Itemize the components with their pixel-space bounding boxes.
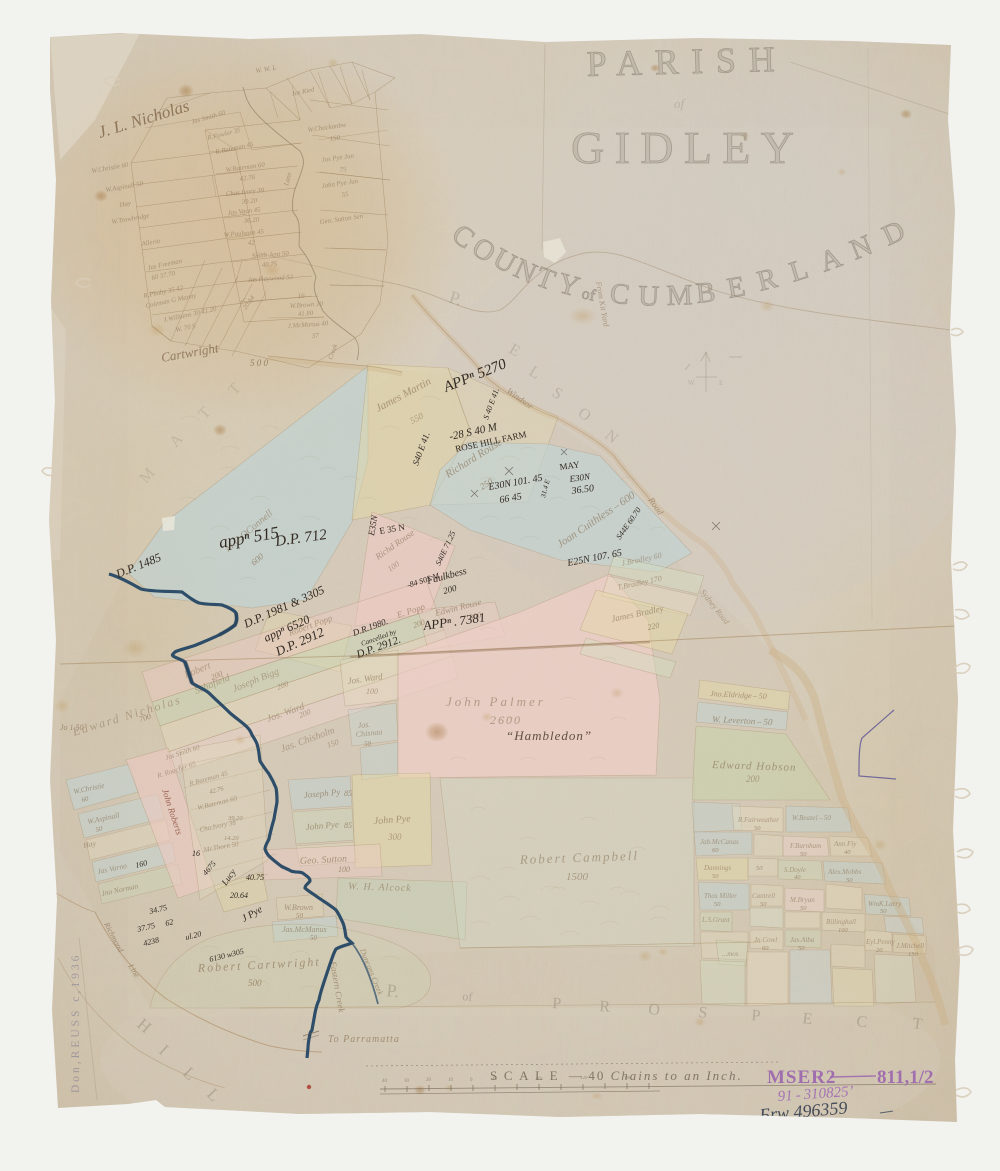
svg-text:C: C (608, 277, 631, 311)
svg-text:PARISH: PARISH (586, 39, 783, 84)
svg-text:150: 150 (908, 951, 919, 958)
svg-text:F.Burnham: F.Burnham (789, 842, 821, 850)
svg-text:R.Fairweather: R.Fairweather (737, 816, 779, 824)
svg-text:40: 40 (382, 1079, 388, 1084)
svg-text:Alex.Mobbs: Alex.Mobbs (827, 868, 862, 876)
svg-text:P: P (751, 1007, 762, 1025)
svg-text:M.Bryan: M.Bryan (789, 896, 815, 904)
svg-text:811,1/2: 811,1/2 (877, 1067, 933, 1088)
svg-text:Jas.Alba: Jas.Alba (790, 936, 815, 944)
svg-text:16: 16 (192, 849, 200, 858)
svg-text:50: 50 (754, 825, 761, 832)
svg-text:Don,REUSS c,1936: Don,REUSS c,1936 (70, 953, 82, 1093)
svg-text:40: 40 (844, 849, 851, 856)
svg-text:M: M (666, 279, 693, 312)
svg-text:Jas.McManus: Jas.McManus (282, 925, 327, 934)
svg-text:10: 10 (448, 1078, 454, 1083)
svg-text:W. H. Alcock: W. H. Alcock (348, 881, 412, 894)
svg-text:1500: 1500 (566, 871, 589, 883)
svg-text:B: B (694, 276, 717, 310)
svg-text:WmK.Larry: WmK.Larry (868, 900, 902, 908)
svg-text:20: 20 (876, 947, 883, 954)
svg-text:41.80: 41.80 (298, 310, 314, 318)
svg-text:50: 50 (880, 908, 887, 915)
svg-text:150: 150 (329, 135, 341, 143)
svg-text:50: 50 (760, 901, 767, 908)
svg-text:50: 50 (798, 945, 805, 952)
svg-text:37: 37 (311, 332, 320, 340)
svg-text:40.75: 40.75 (262, 261, 278, 269)
svg-text:P.: P. (386, 980, 401, 1001)
svg-text:“Hambledon”: “Hambledon” (506, 728, 592, 743)
svg-text:W.Beazel – 50: W.Beazel – 50 (792, 814, 831, 822)
svg-text:5 0 0: 5 0 0 (250, 358, 269, 368)
svg-text:100: 100 (838, 927, 849, 934)
svg-text:Thos Miller: Thos Miller (704, 892, 737, 900)
svg-text:Dannings: Dannings (703, 864, 732, 872)
svg-text:500: 500 (248, 978, 262, 988)
svg-text:S.Doyle: S.Doyle (784, 866, 806, 874)
svg-text:40.75: 40.75 (246, 873, 264, 882)
svg-text:42: 42 (248, 239, 256, 247)
svg-text:40: 40 (492, 1077, 498, 1082)
svg-text:20: 20 (426, 1078, 432, 1083)
svg-text:30: 30 (404, 1079, 410, 1084)
svg-text:100: 100 (338, 865, 350, 874)
svg-text:GIDLEY: GIDLEY (571, 122, 802, 173)
svg-text:John Palmer: John Palmer (446, 694, 546, 709)
svg-text:W: W (688, 379, 695, 387)
svg-text:50: 50 (756, 865, 763, 872)
svg-text:50: 50 (296, 912, 304, 920)
svg-text:300: 300 (387, 832, 402, 842)
svg-text:50: 50 (800, 905, 807, 912)
svg-text:60: 60 (762, 945, 769, 952)
svg-text:80: 80 (536, 1077, 542, 1082)
svg-text:P: P (552, 995, 562, 1013)
svg-text:To Parramatta: To Parramatta (328, 1034, 400, 1045)
svg-text:J.Mitchell: J.Mitchell (896, 942, 924, 950)
svg-text:U: U (638, 280, 660, 313)
svg-text:O: O (648, 1001, 661, 1019)
svg-text:Jab.McCanas: Jab.McCanas (700, 838, 739, 846)
svg-text:S C A L E — 40 Chains to an I: S C A L E — 40 Chains to an Inch. (490, 1068, 743, 1083)
svg-text:2600: 2600 (490, 713, 522, 727)
svg-text:85: 85 (344, 789, 352, 798)
svg-text:Ann Fly: Ann Fly (833, 840, 857, 848)
svg-text:50: 50 (364, 740, 372, 748)
svg-text:Billinghall: Billinghall (826, 918, 856, 926)
svg-text:Eyl.Penny: Eyl.Penny (865, 938, 895, 946)
svg-text:50: 50 (712, 873, 719, 880)
svg-text:C: C (856, 1013, 869, 1031)
svg-text:50: 50 (846, 877, 853, 884)
svg-text:200: 200 (746, 774, 760, 784)
svg-text:of: of (462, 989, 473, 1004)
svg-text:120: 120 (580, 1076, 588, 1081)
svg-text:W.Brown: W.Brown (284, 903, 313, 912)
svg-text:85: 85 (344, 821, 352, 830)
svg-text:60: 60 (712, 847, 719, 854)
svg-text:50: 50 (310, 934, 318, 942)
svg-text:R: R (599, 998, 611, 1016)
svg-text:S: S (698, 1004, 709, 1022)
svg-text:L.S.Grant: L.S.Grant (701, 916, 731, 924)
svg-text:Cantrell: Cantrell (752, 892, 775, 900)
svg-text:40: 40 (794, 874, 801, 881)
svg-text:20.64: 20.64 (230, 891, 248, 900)
svg-text:50: 50 (800, 851, 807, 858)
svg-text:E: E (719, 379, 723, 387)
svg-text:50: 50 (714, 901, 721, 908)
svg-text:160: 160 (624, 1076, 632, 1081)
svg-text:100: 100 (366, 687, 378, 696)
svg-text:Jn.Cowl: Jn.Cowl (754, 936, 777, 944)
svg-text:16: 16 (298, 292, 306, 299)
svg-text:...mos: ...mos (722, 950, 739, 958)
svg-text:E: E (802, 1010, 814, 1028)
